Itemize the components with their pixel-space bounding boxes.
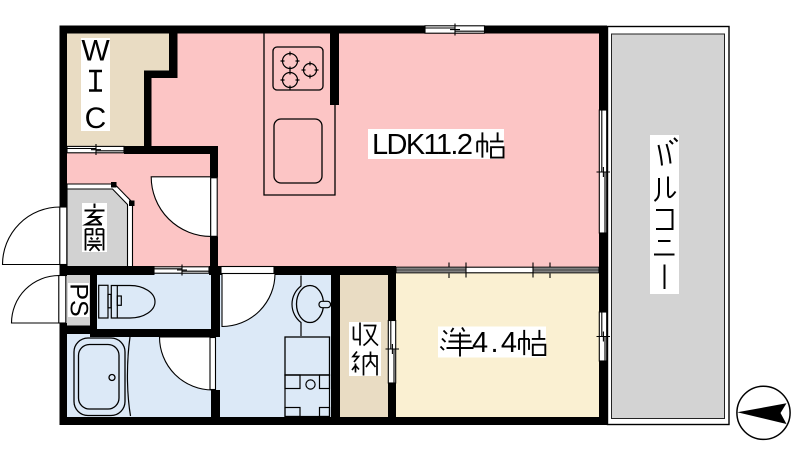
svg-text:LDK11.2: LDK11.2 [372, 129, 473, 161]
svg-text:4.4: 4.4 [472, 327, 517, 359]
svg-text:W: W [81, 35, 110, 68]
svg-text:PS: PS [65, 283, 93, 316]
svg-text:C: C [85, 102, 107, 135]
